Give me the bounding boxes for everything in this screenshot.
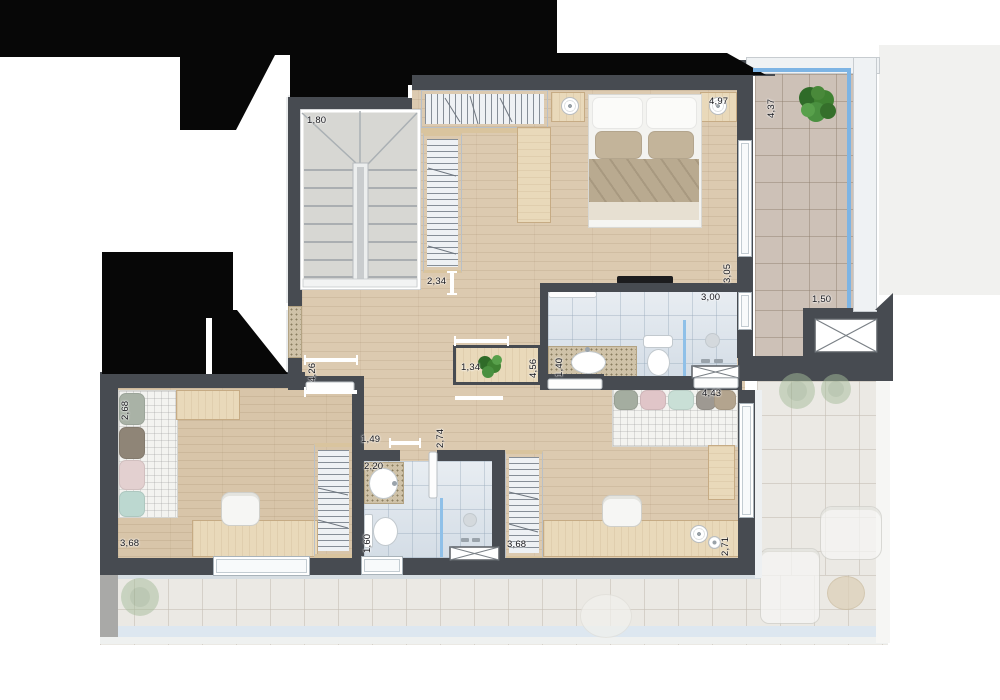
bed-runner — [589, 202, 699, 221]
wardrobe-master-top — [421, 90, 548, 128]
dim-balcony-length: 4,37 — [766, 99, 777, 118]
roof-panel — [879, 45, 1000, 295]
pillow — [119, 460, 145, 490]
terrace-chair — [760, 548, 820, 624]
dim-bath2-entry: 1,49 — [361, 434, 380, 445]
pillow — [668, 390, 694, 410]
wall — [288, 97, 412, 112]
wall — [803, 308, 893, 358]
wall — [100, 558, 760, 575]
window-bath2 — [361, 556, 403, 575]
sink-icon — [571, 351, 606, 374]
shower-valve-icon — [714, 359, 723, 363]
shelf-bedroom2 — [176, 390, 240, 420]
wardrobe-bedroom2 — [314, 443, 353, 558]
wall — [352, 450, 400, 461]
toilet-icon — [643, 335, 673, 348]
wall — [540, 374, 604, 390]
dim-bath2-toilet: 1,60 — [362, 534, 373, 553]
window-bedroom2 — [213, 556, 310, 576]
terrace-right-edge — [876, 372, 890, 643]
dim-bedroom3-wardrobe: 3,68 — [507, 539, 526, 550]
dim-master-depth: 3,05 — [722, 264, 733, 283]
bed-foot — [589, 220, 699, 226]
dim-staircase: 1,80 — [307, 115, 326, 126]
pillow — [592, 97, 643, 129]
dim-balcony-width: 1,50 — [812, 294, 831, 305]
faucet-icon — [585, 347, 590, 352]
pillow — [119, 427, 145, 459]
lamp-icon — [561, 97, 579, 115]
shower-head-icon — [463, 513, 477, 527]
terrace-round-table — [580, 594, 632, 638]
wall — [492, 452, 505, 560]
dim-master-bath: 3,00 — [701, 292, 720, 303]
wall — [738, 356, 893, 381]
window-master — [738, 140, 752, 257]
chair-bedroom3 — [602, 495, 642, 527]
pillow — [646, 97, 697, 129]
wall — [100, 372, 118, 575]
wall — [540, 283, 548, 378]
pillow — [595, 131, 642, 159]
wall — [412, 75, 742, 90]
dim-bedroom3-desk: 2,71 — [720, 537, 731, 556]
toilet-bowl — [373, 517, 398, 546]
chair-bedroom2 — [221, 492, 260, 526]
wardrobe-master-side — [423, 133, 462, 273]
pillow — [640, 390, 666, 410]
dim-console: 1,34 — [461, 362, 480, 373]
desk-master — [517, 127, 551, 223]
dim-stair-opening: 2,34 — [427, 276, 446, 287]
dim-master-bedroom: 4,97 — [709, 96, 728, 107]
terrace-outer-strip — [100, 637, 888, 644]
towel-bar — [548, 291, 597, 298]
terrace-table — [820, 506, 882, 560]
wall-granite — [288, 306, 302, 358]
dim-bath2-length: 2,74 — [435, 429, 446, 448]
window-master-bath — [738, 292, 752, 330]
dim-master-bath-depth: 1,40 — [554, 358, 565, 377]
faucet-icon — [392, 481, 397, 486]
terrace-stool — [827, 576, 865, 610]
window-bedroom3 — [739, 403, 754, 518]
terrace-pool-edge — [116, 626, 888, 637]
shower-glass — [440, 498, 443, 557]
pillow — [119, 491, 145, 517]
window-sill — [755, 390, 762, 578]
pillow — [648, 131, 694, 159]
dim-hall-depth: 4,56 — [528, 359, 539, 378]
desk-bedroom2 — [192, 520, 318, 557]
dim-bedroom3-width: 4,43 — [702, 388, 721, 399]
shower-glass — [683, 320, 686, 378]
shower-valve-icon — [461, 538, 469, 542]
shower-valve-icon — [701, 359, 710, 363]
nightstand-bedroom3 — [708, 445, 735, 500]
wall — [100, 372, 305, 388]
bed-duvet — [589, 159, 699, 204]
shower-valve-icon — [472, 538, 480, 542]
shower-head-icon — [705, 333, 720, 348]
dim-hall-length: 4,26 — [307, 363, 318, 382]
toilet-bowl — [647, 349, 670, 376]
balcony-frame-right — [853, 57, 877, 312]
dim-bedroom2-width: 2,68 — [120, 401, 131, 420]
pillow — [614, 390, 638, 410]
lamp-icon — [690, 525, 708, 543]
floor-balcony-lower — [755, 310, 803, 358]
floor-plan: 1,80 2,34 4,97 4,37 3,05 3,00 1,50 4,26 … — [0, 0, 1000, 700]
dim-bedroom2-length: 3,68 — [120, 538, 139, 549]
wall — [540, 283, 742, 292]
dim-bath2-counter: 2,20 — [364, 461, 383, 472]
terrace-pillar — [100, 573, 118, 637]
